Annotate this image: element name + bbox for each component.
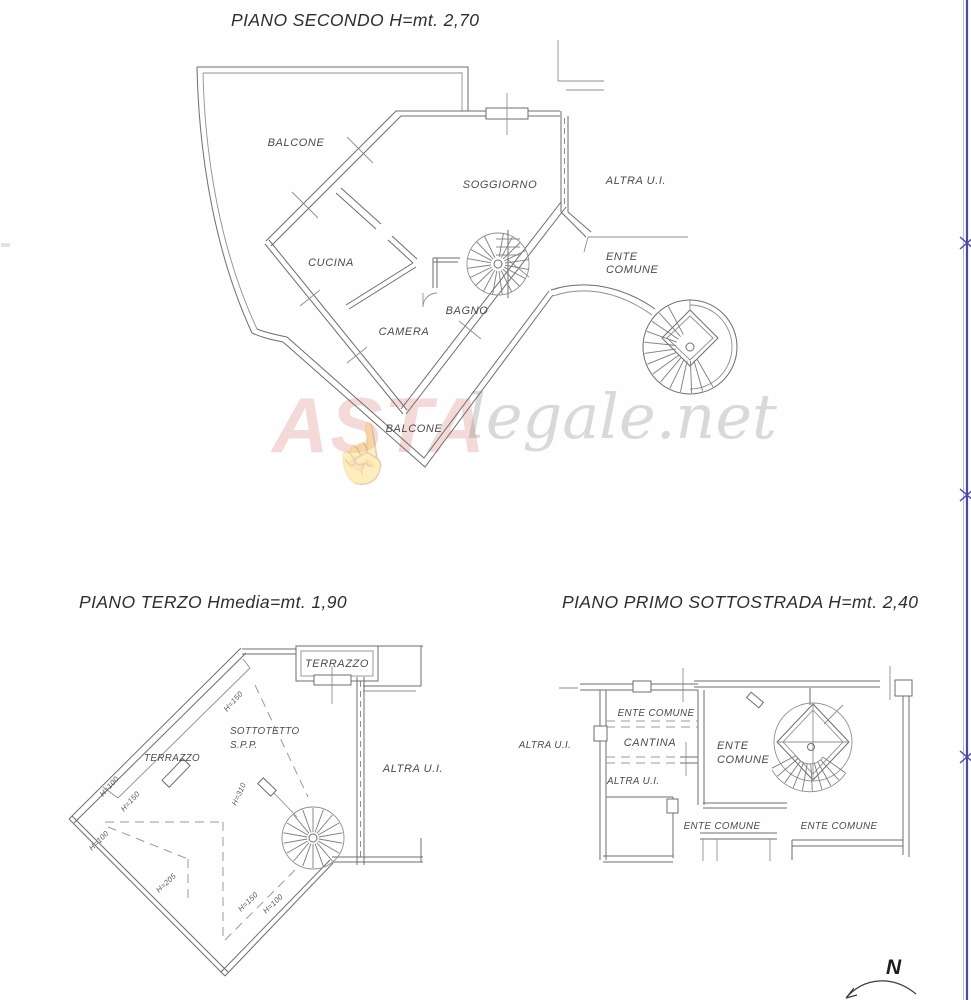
north-indicator: N <box>846 956 916 998</box>
room-label-altra-ui-outside: ALTRA U.I. <box>518 740 571 751</box>
watermark: ASTA legale.net ☝ <box>270 380 777 492</box>
plan-secondo-labels: PIANO SECONDO H=mt. 2,70 BALCONE SOGGIOR… <box>231 10 666 435</box>
room-label-ente-comune-bottom-right: ENTE COMUNE <box>801 821 878 832</box>
room-label-comune-center: COMUNE <box>717 754 770 766</box>
scan-artifact <box>1 243 10 247</box>
room-label-balcone-bottom: BALCONE <box>386 423 443 435</box>
height-label-h100-left: H=100 <box>98 774 121 798</box>
plan-primo-title: PIANO PRIMO SOTTOSTRADA H=mt. 2,40 <box>562 592 918 612</box>
floorplan-sheet: ASTA legale.net ☝ <box>0 0 971 1000</box>
room-label-altra-ui-terzo: ALTRA U.I. <box>382 763 443 775</box>
height-label-h205: H=205 <box>154 871 178 894</box>
room-label-ente: ENTE <box>606 251 638 263</box>
room-label-cantina: CANTINA <box>624 737 676 749</box>
room-label-sottotetto: SOTTOTETTO <box>230 726 300 737</box>
plan-secondo-title: PIANO SECONDO H=mt. 2,70 <box>231 10 479 30</box>
plan-piano-terzo: PIANO TERZO Hmedia=mt. 1,90 TERRAZZO SOT… <box>69 592 443 976</box>
room-label-ente-center: ENTE <box>717 740 749 752</box>
room-label-terrazzo-left: TERRAZZO <box>144 753 200 764</box>
room-label-comune: COMUNE <box>606 264 659 276</box>
room-label-altra-ui-inner: ALTRA U.I. <box>606 776 659 787</box>
border-tick-marks <box>960 237 971 763</box>
north-arrow-icon <box>846 981 916 998</box>
room-label-camera: CAMERA <box>379 326 430 338</box>
floorplan-drawing: ASTA legale.net ☝ <box>0 0 971 1000</box>
height-label-h100-bottom: H=100 <box>261 892 285 916</box>
north-label: N <box>886 956 902 979</box>
room-label-terrazzo-top: TERRAZZO <box>305 658 369 670</box>
spiral-stair-terzo <box>258 778 344 869</box>
room-label-cucina: CUCINA <box>308 257 354 269</box>
height-label-h150-left: H=150 <box>119 789 142 813</box>
spiral-stair-interior <box>467 230 529 298</box>
height-label-h310: H=310 <box>230 781 249 807</box>
room-label-bagno: BAGNO <box>446 305 489 317</box>
plan-primo-labels: PIANO PRIMO SOTTOSTRADA H=mt. 2,40 ENTE … <box>518 592 919 832</box>
room-label-ente-comune-bottom-left: ENTE COMUNE <box>684 821 761 832</box>
room-label-balcone-top: BALCONE <box>268 137 325 149</box>
room-label-spp: S.P.P. <box>230 740 258 751</box>
room-label-soggiorno: SOGGIORNO <box>463 179 537 191</box>
plan-piano-primo: PIANO PRIMO SOTTOSTRADA H=mt. 2,40 ENTE … <box>518 592 919 862</box>
spiral-stair-primo <box>772 703 852 792</box>
watermark-brand-rest: legale.net <box>466 380 777 453</box>
room-label-altra-ui: ALTRA U.I. <box>605 175 666 187</box>
page-border <box>1 0 971 1000</box>
room-label-ente-comune-top: ENTE COMUNE <box>618 708 695 719</box>
plan-terzo-title: PIANO TERZO Hmedia=mt. 1,90 <box>79 592 347 612</box>
height-label-h150-bottom: H=150 <box>236 890 260 914</box>
plan-terzo-labels: PIANO TERZO Hmedia=mt. 1,90 TERRAZZO SOT… <box>79 592 443 915</box>
